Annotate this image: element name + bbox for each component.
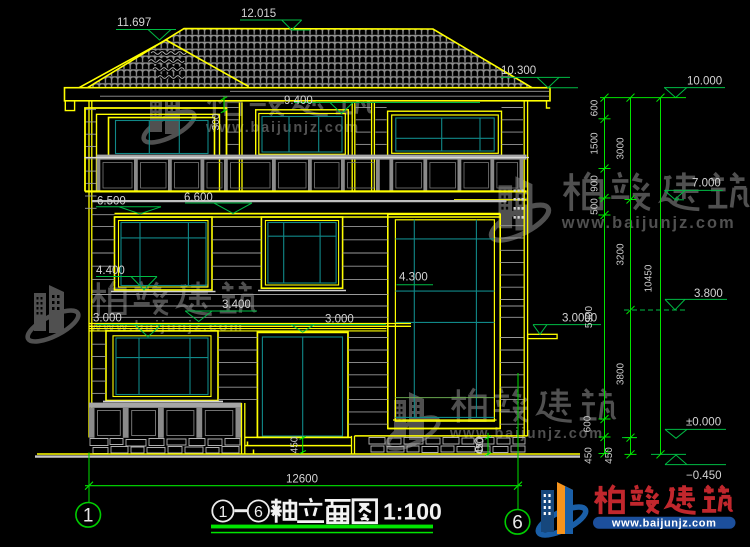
svg-text:3.400: 3.400 [222,299,251,311]
svg-text:500: 500 [590,198,601,215]
svg-text:600: 600 [583,415,594,432]
svg-text:6: 6 [512,513,523,534]
svg-text:3.800: 3.800 [694,288,723,300]
svg-text:4.400: 4.400 [96,265,125,277]
svg-text:450: 450 [604,447,615,464]
svg-text:12.015: 12.015 [241,8,276,20]
svg-text:9.400: 9.400 [284,95,313,107]
svg-text:4.300: 4.300 [399,272,428,284]
svg-text:1500: 1500 [590,132,601,155]
svg-text:6.600: 6.600 [184,192,213,204]
svg-text:3000: 3000 [616,137,627,160]
svg-text:7.000: 7.000 [692,178,721,190]
svg-text:−0.450: −0.450 [686,470,722,482]
svg-text:11.697: 11.697 [117,17,151,29]
svg-text:1: 1 [83,506,94,527]
svg-text:1: 1 [218,504,227,521]
svg-text:www.baijunjz.com: www.baijunjz.com [611,517,717,529]
svg-text:450: 450 [584,447,595,464]
svg-text:12600: 12600 [286,474,318,486]
svg-text:3800: 3800 [616,362,627,385]
svg-text:3200: 3200 [616,243,627,266]
svg-text:450: 450 [290,436,301,453]
svg-text:900: 900 [590,175,601,192]
svg-text:10.300: 10.300 [501,65,536,77]
svg-text:3.000: 3.000 [325,314,354,326]
svg-text:600: 600 [590,99,601,116]
svg-text:5900: 5900 [584,305,595,328]
svg-text:1:100: 1:100 [383,499,442,525]
svg-text:10450: 10450 [644,264,655,292]
svg-text:10.000: 10.000 [687,76,722,88]
svg-text:3.000: 3.000 [93,313,122,325]
svg-text:300: 300 [211,113,222,130]
svg-text:6: 6 [254,504,263,521]
svg-text:450: 450 [475,437,486,454]
svg-text:±0.000: ±0.000 [686,417,721,429]
svg-text:6.500: 6.500 [97,196,126,208]
